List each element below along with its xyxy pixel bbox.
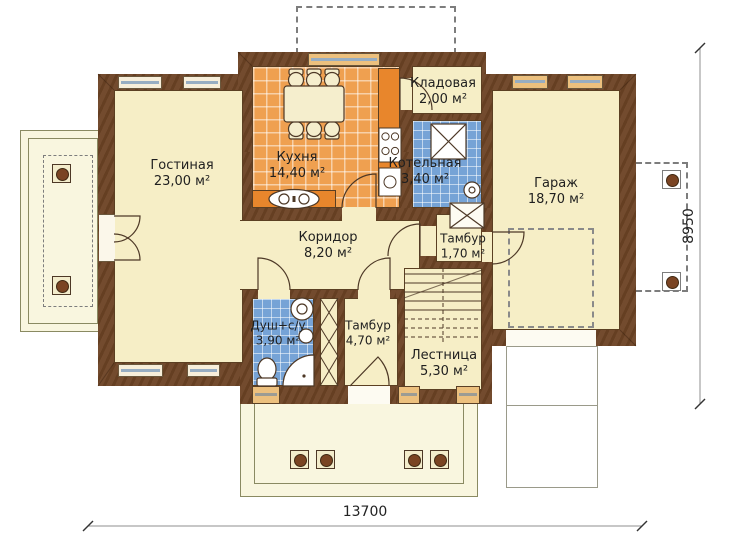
porch-column	[290, 450, 309, 469]
column-post-icon	[320, 454, 333, 467]
room-area: 4,70 м²	[345, 333, 391, 348]
room-name: Тамбур	[440, 231, 486, 246]
porch-pilaster	[398, 386, 420, 404]
room-name: Тамбур	[345, 318, 391, 333]
room-area: 1,70 м²	[440, 246, 486, 261]
window-garage-top-2	[567, 75, 603, 89]
window-living-bottom-1	[118, 364, 163, 377]
glass	[255, 393, 277, 396]
dimension-width-label: 13700	[343, 504, 388, 520]
room-name: Кухня	[269, 150, 325, 166]
porch-column	[404, 450, 423, 469]
terrace-column	[52, 164, 71, 183]
apron-edge-line	[507, 405, 597, 406]
glass	[459, 393, 477, 396]
window-garage-top-1	[512, 75, 548, 89]
glass	[570, 80, 600, 83]
room-name: Кладовая	[410, 76, 476, 92]
room-area: 23,00 м²	[150, 174, 213, 190]
closet-shaft	[320, 298, 338, 386]
window-living-top-1	[118, 76, 162, 89]
room-label-storage: Кладовая 2,00 м²	[410, 76, 476, 108]
glass	[311, 58, 377, 61]
garage-driveway-apron	[506, 346, 598, 488]
room-label-tambour-upper: Тамбур 1,70 м²	[440, 231, 486, 260]
porch-pilaster	[252, 386, 280, 404]
entry-door-opening	[348, 386, 390, 404]
room-area: 3,40 м²	[388, 172, 461, 188]
room-label-shower-wc: Душ+с/у 3,90 м²	[250, 318, 305, 347]
room-label-kitchen: Кухня 14,40 м²	[269, 150, 325, 182]
room-area: 2,00 м²	[410, 92, 476, 108]
room-area: 3,90 м²	[250, 333, 305, 348]
room-name: Душ+с/у	[250, 318, 305, 333]
room-area: 14,40 м²	[269, 166, 325, 182]
room-area: 5,30 м²	[411, 364, 477, 380]
column-post-icon	[56, 280, 69, 293]
opening-tambour-lower-door	[358, 289, 390, 299]
canopy-column	[662, 272, 681, 291]
column-post-icon	[408, 454, 421, 467]
room-label-stairs: Лестница 5,30 м²	[411, 348, 477, 380]
floor-plan: Гостиная 23,00 м² Кухня 14,40 м² Кладова…	[0, 0, 730, 558]
porch-inner-line	[254, 403, 464, 484]
room-label-corridor: Коридор 8,20 м²	[298, 230, 357, 262]
room-living	[114, 90, 243, 363]
room-area: 18,70 м²	[528, 192, 584, 208]
terrace-left	[20, 130, 106, 332]
window-living-bottom-2	[187, 364, 220, 377]
column-post-icon	[56, 168, 69, 181]
canopy-outline-top	[296, 6, 456, 54]
room-label-garage: Гараж 18,70 м²	[528, 176, 584, 208]
glass	[401, 393, 417, 396]
glass	[190, 369, 217, 372]
window-kitchen-top	[308, 53, 380, 66]
room-label-living: Гостиная 23,00 м²	[150, 158, 213, 190]
room-label-tambour-lower: Тамбур 4,70 м²	[345, 318, 391, 347]
kitchen-sink-counter	[252, 190, 336, 208]
room-name: Лестница	[411, 348, 477, 364]
terrace-column	[52, 276, 71, 295]
opening-bath-door	[258, 289, 290, 299]
room-label-boiler: Котельная 3,40 м²	[388, 156, 461, 188]
garage-door-opening	[506, 330, 596, 346]
opening-kitchen-corridor	[342, 207, 376, 221]
room-name: Гостиная	[150, 158, 213, 174]
window-living-top-2	[183, 76, 221, 89]
porch-pilaster	[456, 386, 480, 404]
glass	[186, 81, 218, 84]
room-name: Котельная	[388, 156, 461, 172]
room-area: 8,20 м²	[298, 246, 357, 262]
opening-corridor-tambour	[420, 226, 436, 256]
column-post-icon	[666, 174, 679, 187]
room-name: Гараж	[528, 176, 584, 192]
porch-column	[316, 450, 335, 469]
french-door-opening	[99, 214, 115, 262]
glass	[121, 369, 160, 372]
porch-column	[430, 450, 449, 469]
canopy-column	[662, 170, 681, 189]
glass	[121, 81, 159, 84]
dimension-depth-label: 8950	[681, 208, 697, 244]
column-post-icon	[666, 276, 679, 289]
room-name: Коридор	[298, 230, 357, 246]
parking-spot-outline	[508, 228, 594, 328]
glass	[515, 80, 545, 83]
column-post-icon	[434, 454, 447, 467]
column-post-icon	[294, 454, 307, 467]
